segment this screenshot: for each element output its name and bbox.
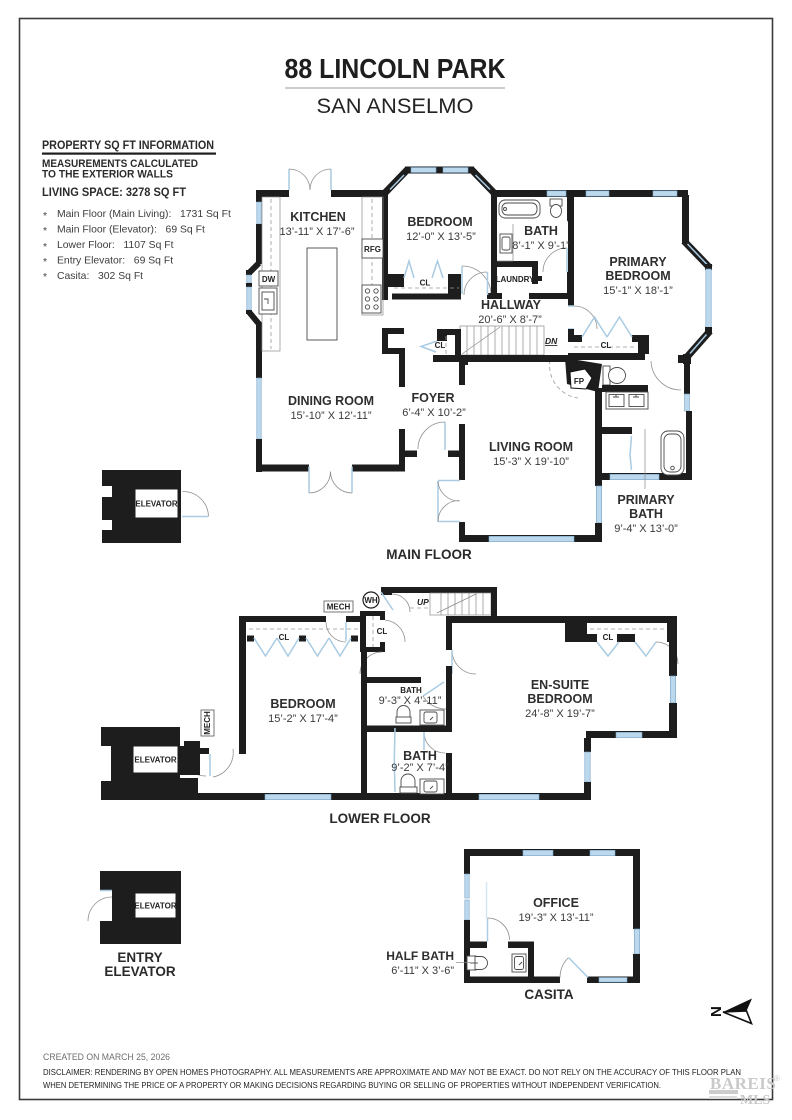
svg-text:®: ® [774, 1074, 780, 1083]
svg-text:BEDROOM: BEDROOM [605, 269, 670, 283]
svg-text:N: N [708, 1006, 725, 1017]
svg-text:CREATED ON MARCH 25, 2026: CREATED ON MARCH 25, 2026 [43, 1052, 170, 1062]
svg-text:20’-6” X 8’-7”: 20’-6” X 8’-7” [478, 314, 542, 326]
svg-text:15’-2” X 17’-4”: 15’-2” X 17’-4” [268, 713, 338, 725]
svg-text:EN-SUITE: EN-SUITE [531, 678, 589, 692]
svg-text:CASITA: CASITA [524, 987, 573, 1002]
svg-text:MAIN FLOOR: MAIN FLOOR [386, 547, 472, 562]
svg-text:RFG: RFG [364, 245, 381, 254]
svg-text:CL: CL [601, 341, 612, 350]
svg-text:LOWER FLOOR: LOWER FLOOR [329, 811, 430, 826]
svg-text:24’-8” X 19’-7”: 24’-8” X 19’-7” [525, 708, 595, 720]
svg-text:ELEVATOR: ELEVATOR [104, 964, 176, 979]
svg-text:BATH: BATH [400, 686, 422, 695]
svg-text:13’-11” X 17’-6”: 13’-11” X 17’-6” [280, 226, 355, 238]
svg-text:6’-11” X 3’-6”: 6’-11” X 3’-6” [391, 965, 454, 977]
svg-text:MECH: MECH [327, 603, 351, 612]
svg-text:CL: CL [279, 633, 290, 642]
svg-text:UP: UP [417, 597, 429, 607]
svg-text:Casita: 302 Sq Ft: Casita: 302 Sq Ft [57, 271, 143, 282]
svg-text:PRIMARY: PRIMARY [609, 255, 667, 269]
svg-text:SAN ANSELMO: SAN ANSELMO [317, 94, 474, 118]
svg-text:BEDROOM: BEDROOM [270, 697, 335, 711]
svg-text:*: * [43, 257, 47, 268]
svg-text:Entry Elevator: 69 Sq Ft: Entry Elevator: 69 Sq Ft [57, 256, 173, 267]
svg-text:*: * [43, 211, 47, 222]
svg-text:KITCHEN: KITCHEN [290, 210, 346, 224]
svg-text:WHEN DETERMINING THE PRICE OF: WHEN DETERMINING THE PRICE OF A PROPERTY… [43, 1080, 661, 1090]
svg-text:HALF BATH: HALF BATH [386, 949, 454, 963]
svg-text:Main Floor (Main Living): 17: Main Floor (Main Living): 1731 Sq Ft [57, 209, 231, 220]
svg-text:HALLWAY: HALLWAY [481, 298, 542, 312]
svg-text:ELEVATOR: ELEVATOR [134, 756, 176, 765]
svg-text:ELEVATOR: ELEVATOR [135, 500, 177, 509]
svg-text:LIVING ROOM: LIVING ROOM [489, 440, 573, 454]
svg-text:CL: CL [603, 633, 614, 642]
svg-text:BEDROOM: BEDROOM [407, 215, 472, 229]
svg-text:12’-0” X 13’-5”: 12’-0” X 13’-5” [406, 231, 476, 243]
svg-text:WH: WH [364, 596, 378, 605]
svg-text:15’-1” X 18’-1”: 15’-1” X 18’-1” [603, 285, 673, 297]
svg-text:Lower Floor: 1107 Sq Ft: Lower Floor: 1107 Sq Ft [57, 240, 174, 251]
svg-text:DINING ROOM: DINING ROOM [288, 394, 374, 408]
svg-text:ENTRY: ENTRY [117, 950, 162, 965]
svg-text:*: * [43, 242, 47, 253]
svg-text:LIVING SPACE: 3278 SQ FT: LIVING SPACE: 3278 SQ FT [42, 185, 187, 199]
svg-text:BATH: BATH [403, 749, 437, 763]
svg-text:CL: CL [435, 341, 446, 350]
svg-text:ELEVATOR: ELEVATOR [134, 902, 176, 911]
svg-text:DISCLAIMER: RENDERING BY OPEN: DISCLAIMER: RENDERING BY OPEN HOMES PHOT… [43, 1067, 741, 1077]
svg-text:9’-4” X 13’-0”: 9’-4” X 13’-0” [614, 523, 678, 535]
svg-text:15’-10” X 12’-11”: 15’-10” X 12’-11” [290, 410, 371, 422]
svg-text:LAUNDRY: LAUNDRY [496, 275, 535, 284]
svg-text:OFFICE: OFFICE [533, 896, 579, 910]
svg-text:DN: DN [545, 336, 558, 346]
svg-text:MECH: MECH [203, 711, 212, 735]
svg-text:CL: CL [420, 279, 431, 288]
svg-text:BATH: BATH [629, 507, 663, 521]
svg-text:9’-3” X 4’-11”: 9’-3” X 4’-11” [379, 695, 442, 707]
svg-text:*: * [43, 272, 47, 283]
svg-text:88 LINCOLN PARK: 88 LINCOLN PARK [285, 53, 506, 84]
svg-text:6’-4” X 10’-2”: 6’-4” X 10’-2” [402, 407, 466, 419]
svg-text:DW: DW [262, 275, 276, 284]
svg-text:FOYER: FOYER [411, 391, 454, 405]
svg-text:8’-1” X 9’-1”: 8’-1” X 9’-1” [512, 240, 570, 252]
svg-text:PROPERTY SQ FT INFORMATION: PROPERTY SQ FT INFORMATION [42, 138, 214, 152]
svg-text:9’-2” X 7’-4”: 9’-2” X 7’-4” [391, 762, 449, 774]
svg-text:CL: CL [377, 627, 388, 636]
svg-text:19’-3” X 13’-11”: 19’-3” X 13’-11” [519, 912, 594, 924]
svg-text:BEDROOM: BEDROOM [527, 692, 592, 706]
svg-text:FP: FP [574, 377, 585, 386]
svg-text:15’-3” X 19’-10”: 15’-3” X 19’-10” [493, 456, 569, 468]
svg-text:TO THE EXTERIOR WALLS: TO THE EXTERIOR WALLS [42, 169, 173, 181]
svg-text:*: * [43, 226, 47, 237]
svg-text:PRIMARY: PRIMARY [617, 493, 675, 507]
svg-text:MLS: MLS [740, 1093, 771, 1108]
svg-text:Main Floor (Elevator): 69 Sq: Main Floor (Elevator): 69 Sq Ft [57, 225, 205, 236]
svg-text:BATH: BATH [524, 224, 558, 238]
